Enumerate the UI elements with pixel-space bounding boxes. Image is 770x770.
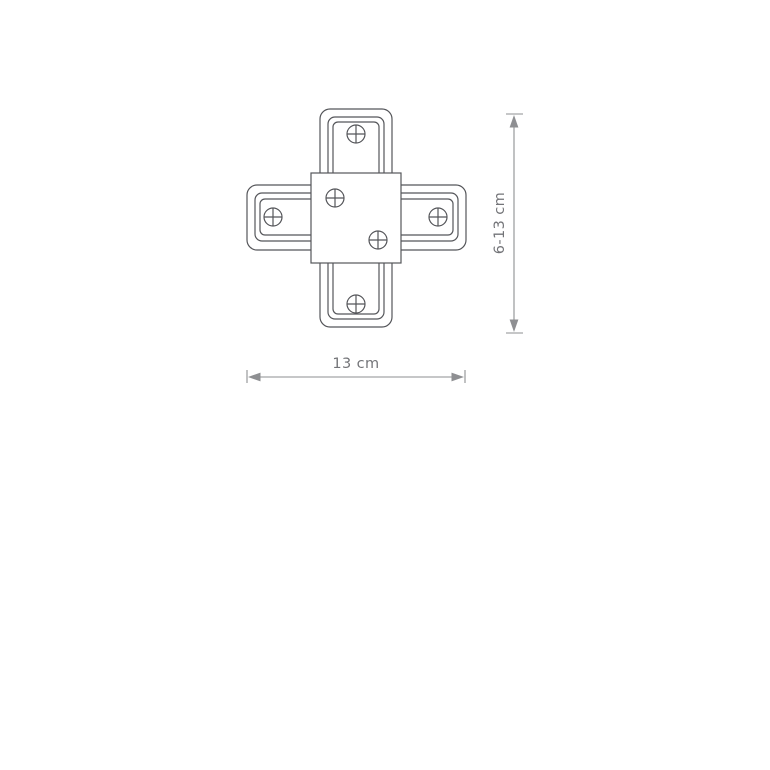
screw-icon-left-arm	[264, 208, 282, 226]
screw-icon-right-arm	[429, 208, 447, 226]
screw-icon-body-top-left	[326, 189, 344, 207]
arrow-left-icon	[248, 373, 261, 382]
height-dimension-label: 6-13 cm	[491, 178, 509, 268]
width-dimension-label: 13 cm	[248, 355, 464, 373]
screw-icon-body-bottom-right	[369, 231, 387, 249]
screw-icon-bottom-arm	[347, 295, 365, 313]
technical-drawing-canvas: 13 cm 6-13 cm	[0, 0, 770, 770]
screw-icon-top-arm	[347, 125, 365, 143]
arrow-down-icon	[510, 320, 519, 333]
x-connector-diagram	[0, 0, 770, 770]
arrow-up-icon	[510, 115, 519, 128]
arrow-right-icon	[452, 373, 465, 382]
connector-body	[311, 173, 401, 263]
